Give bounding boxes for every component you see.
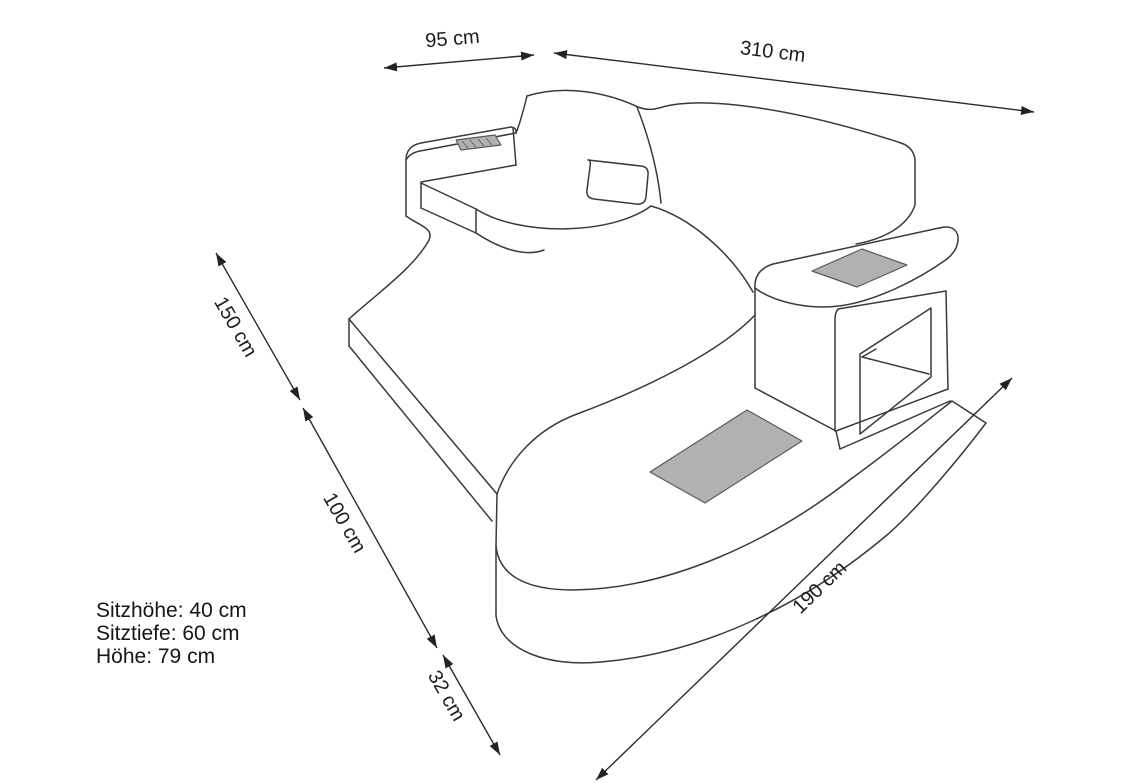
- base-platform: [496, 401, 986, 663]
- backrest-top-edge: [527, 90, 901, 143]
- chaise-front-top-edge: [349, 319, 497, 494]
- backrest-left-edge: [516, 96, 527, 133]
- dimension-label-100cm: 100 cm: [318, 489, 370, 557]
- dimension-label-310cm: 310 cm: [739, 37, 807, 67]
- seat-wave-lower: [476, 233, 544, 253]
- dimension-label-150cm: 150 cm: [209, 293, 261, 361]
- dimension-label-95cm: 95 cm: [424, 26, 480, 53]
- backrest: [513, 90, 915, 244]
- seat-front-left-top-edge: [421, 183, 476, 209]
- right-armrest-top-right-cap: [939, 227, 958, 259]
- sofa-drawing: [349, 90, 986, 662]
- seat-back-edge: [421, 165, 516, 182]
- seat-front-left-bottom-edge: [421, 208, 476, 233]
- backrest-right-edge: [856, 143, 915, 244]
- right-armrest-side-left-edge: [835, 309, 838, 431]
- dimension-arrow-95cm: [384, 55, 534, 68]
- dimension-label-32cm: 32 cm: [423, 667, 469, 725]
- spec-height: Höhe: 79 cm: [96, 645, 247, 668]
- platform-armrest-corner-edge: [836, 431, 840, 449]
- right-armrest-top-left-corner: [755, 264, 773, 288]
- corner-seat: [421, 165, 753, 292]
- right-armrest-side-right-edge: [946, 291, 948, 389]
- seat-wave-upper: [476, 206, 651, 229]
- spec-seat-depth: Sitztiefe: 60 cm: [96, 622, 247, 645]
- floor-led-insert: [650, 410, 802, 503]
- chaise-front-corner-edge: [496, 494, 497, 546]
- sofa-dimension-diagram: 95 cm 310 cm 150 cm 100 cm 32 cm 190 cm …: [0, 0, 1134, 783]
- dimension-label-190cm: 190 cm: [789, 557, 851, 618]
- armrest-table-insert: [812, 249, 907, 287]
- right-armrest-side-top-edge: [838, 291, 946, 309]
- chaise-front-bottom-edge: [349, 346, 492, 521]
- right-armrest: [755, 227, 958, 434]
- shelf-inner-edge-top: [862, 349, 876, 357]
- product-specs: Sitzhöhe: 40 cm Sitztiefe: 60 cm Höhe: 7…: [96, 599, 247, 668]
- spec-seat-height: Sitzhöhe: 40 cm: [96, 599, 247, 622]
- chaise-left-silhouette: [349, 216, 430, 319]
- shelf-opening: [860, 308, 931, 434]
- lumbar-pillow: [587, 160, 648, 204]
- backrest-cushion-division: [637, 107, 661, 203]
- shelf-inner-edge-bottom: [862, 357, 929, 374]
- backrest-seat-wave: [651, 206, 753, 292]
- dimension-arrow-190cm: [596, 378, 1012, 780]
- dimension-arrow-100cm: [303, 408, 437, 648]
